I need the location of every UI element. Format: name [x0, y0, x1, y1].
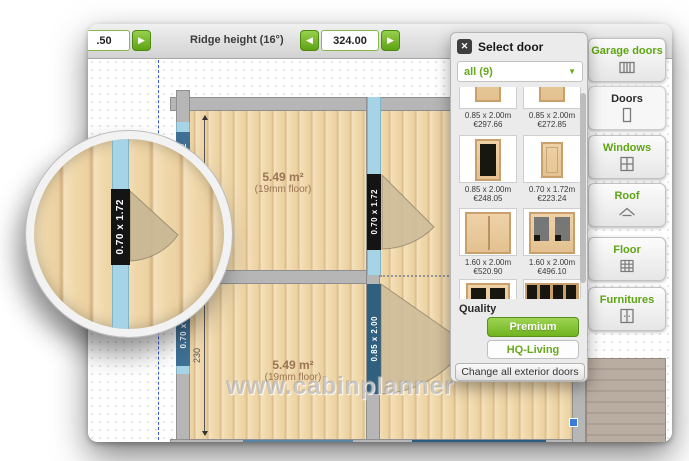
door-thumbnail	[459, 135, 517, 183]
ridge-height-value[interactable]: 324.00	[321, 30, 379, 51]
floor-grid-icon	[618, 258, 636, 274]
arrow-right-icon: ▶	[138, 35, 145, 46]
door-image	[465, 212, 511, 254]
sidebar-label: Garage doors	[591, 45, 663, 57]
panel-title: Select door	[478, 40, 543, 54]
door-thumbnail	[523, 279, 581, 299]
roof-icon	[618, 204, 636, 220]
door-swing-top	[382, 175, 434, 249]
door-price: €248.05	[474, 194, 503, 203]
room-label-top: 5.49 m² (19mm floor)	[218, 170, 348, 195]
loupe-swing-arc	[130, 191, 178, 261]
door-image	[475, 87, 501, 102]
door-size: 0.85 x 2.00m	[465, 185, 511, 194]
door-image	[529, 212, 575, 254]
sidebar-item-garage-doors[interactable]: Garage doors	[588, 38, 666, 82]
door-thumbnail	[459, 87, 517, 109]
door-thumbnail	[523, 208, 581, 256]
door-image	[525, 283, 579, 299]
door-thumbnail	[523, 135, 581, 183]
door-size: 0.70 x 1.72m	[529, 185, 575, 194]
door-option-4[interactable]: 0.70 x 1.72m€223.24	[523, 135, 581, 203]
door-option-1[interactable]: 0.85 x 2.00m€297.66	[459, 87, 517, 129]
door-image	[475, 139, 501, 181]
door-size: 1.60 x 2.00m	[529, 258, 575, 267]
door-option-5[interactable]: 1.60 x 2.00m€520.90	[459, 208, 517, 276]
sidebar-label: Floor	[613, 244, 641, 256]
hq-living-label: HQ-Living	[507, 344, 560, 356]
list-scrollbar[interactable]	[580, 93, 586, 283]
furniture-icon	[618, 308, 636, 324]
door-thumbnail	[459, 279, 517, 299]
door-size: 0.85 x 2.00m	[465, 111, 511, 120]
quality-premium-button[interactable]: Premium	[487, 317, 579, 337]
door-thumbnail	[459, 208, 517, 256]
window-icon	[618, 156, 636, 172]
door-option-8[interactable]	[523, 279, 581, 299]
door-option-6[interactable]: 1.60 x 2.00m€496.10	[523, 208, 581, 276]
door-size: 0.85 x 2.00m	[529, 111, 575, 120]
garage-doors-icon	[618, 59, 636, 75]
sidebar-label: Doors	[611, 93, 643, 105]
wall-height-increase-button[interactable]: ▶	[132, 30, 151, 51]
room-top-area: 5.49 m²	[218, 170, 348, 184]
dropdown-selected-value: all (9)	[464, 66, 568, 78]
sidebar-label: Windows	[603, 142, 651, 154]
door-option-3[interactable]: 0.85 x 2.00m€248.05	[459, 135, 517, 203]
door-size: 1.60 x 2.00m	[465, 258, 511, 267]
premium-label: Premium	[509, 321, 556, 333]
door-icon	[618, 107, 636, 123]
door-option-7[interactable]	[459, 279, 517, 299]
door-price: €223.24	[538, 194, 567, 203]
door-price: €496.10	[538, 267, 567, 276]
door-thumbnail	[523, 87, 581, 109]
door-filter-dropdown[interactable]: all (9) ▼	[457, 61, 583, 82]
sidebar-label: Roof	[614, 190, 639, 202]
close-panel-button[interactable]: ✕	[457, 39, 472, 54]
chevron-down-icon: ▼	[568, 67, 576, 76]
sidebar-item-roof[interactable]: Roof	[588, 183, 666, 227]
watermark: www.cabinplanner	[226, 372, 454, 401]
arrow-right-icon: ▶	[387, 35, 394, 46]
sidebar-item-floor[interactable]: Floor	[588, 237, 666, 281]
door-image	[539, 87, 565, 102]
quality-hq-living-button[interactable]: HQ-Living	[487, 340, 579, 359]
sidebar-item-furnitures[interactable]: Furnitures	[588, 287, 666, 331]
door-option-2[interactable]: 0.85 x 2.00m€272.85	[523, 87, 581, 129]
close-icon: ✕	[461, 41, 469, 52]
door-image	[466, 283, 510, 299]
sidebar-item-doors[interactable]: Doors	[588, 86, 666, 130]
change-all-label: Change all exterior doors	[461, 366, 578, 378]
quality-label: Quality	[459, 303, 496, 315]
door-price: €272.85	[538, 120, 567, 129]
magnifier-loupe: 0.70 x 1.72	[26, 131, 232, 337]
door-list: 0.85 x 2.00m€297.66 0.85 x 2.00m€272.85 …	[453, 87, 587, 299]
ridge-height-decrease-button[interactable]: ◀	[300, 30, 319, 51]
change-all-exterior-doors-button[interactable]: Change all exterior doors	[455, 363, 585, 381]
arrow-left-icon: ◀	[306, 35, 313, 46]
ridge-height-increase-button[interactable]: ▶	[381, 30, 400, 51]
loupe-size-text: 0.70 x 1.72	[115, 199, 126, 255]
wall-height-value[interactable]: .50	[88, 30, 130, 51]
door-price: €520.90	[474, 267, 503, 276]
door-price: €297.66	[474, 120, 503, 129]
room-top-floor: (19mm floor)	[218, 184, 348, 195]
room-bottom-area: 5.49 m²	[228, 358, 358, 372]
loupe-size-label: 0.70 x 1.72	[111, 189, 130, 265]
sidebar-item-windows[interactable]: Windows	[588, 135, 666, 179]
door-image	[541, 142, 563, 178]
sidebar-label: Furnitures	[600, 294, 654, 306]
ridge-height-label: Ridge height (16°)	[190, 34, 284, 46]
screenshot-stage: .50 ▶ Ridge height (16°) ◀ 324.00 ▶	[0, 0, 689, 461]
select-door-panel: ✕ Select door all (9) ▼ 0.85 x 2.00m€297…	[450, 32, 588, 382]
